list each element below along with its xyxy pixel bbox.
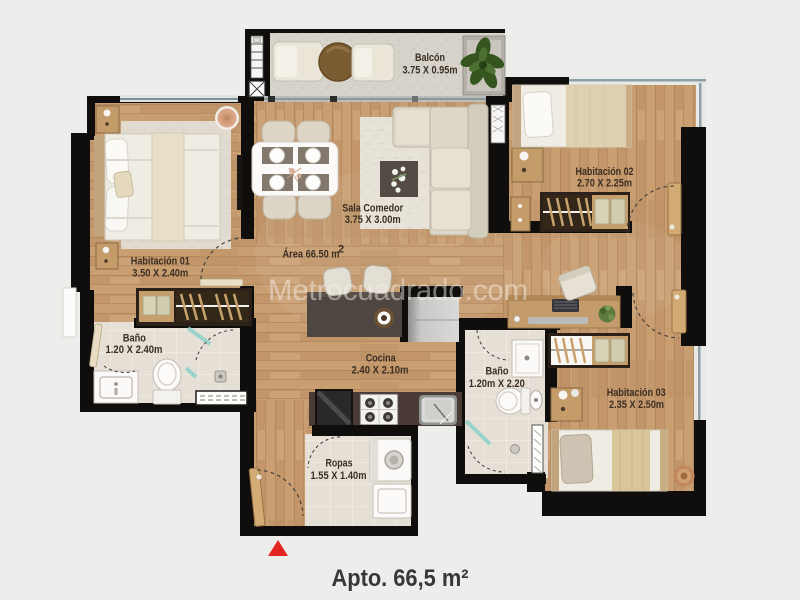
svg-text:Apto. 66,5 m²: Apto. 66,5 m² [332,565,469,592]
svg-text:3.75 X 3.00m: 3.75 X 3.00m [345,214,401,226]
svg-text:Cocina: Cocina [366,353,397,365]
svg-text:Habitación 02: Habitación 02 [576,166,634,178]
svg-text:Área 66.50 m: Área 66.50 m [283,248,340,261]
svg-text:2.70 X 2.25m: 2.70 X 2.25m [577,178,632,190]
svg-text:1.55 X 1.40m: 1.55 X 1.40m [311,470,367,482]
svg-text:3.75 X 0.95m: 3.75 X 0.95m [403,65,458,77]
svg-text:Baño: Baño [123,332,146,344]
svg-text:2.40 X 2.10m: 2.40 X 2.10m [352,364,409,376]
svg-text:2.35 X 2.50m: 2.35 X 2.50m [609,399,664,411]
svg-text:Ropas: Ropas [326,458,353,470]
svg-text:Habitación 01: Habitación 01 [131,256,190,268]
svg-text:1.20m X 2.20: 1.20m X 2.20 [469,378,525,390]
svg-text:Balcón: Balcón [415,52,445,64]
svg-text:Metrocuadrado.com: Metrocuadrado.com [268,274,528,307]
svg-text:3.50 X 2.40m: 3.50 X 2.40m [132,268,188,280]
svg-text:2: 2 [338,244,344,256]
svg-text:Sala Comedor: Sala Comedor [342,203,404,215]
svg-text:1.20 X 2.40m: 1.20 X 2.40m [106,344,163,356]
svg-text:Baño: Baño [486,366,509,378]
svg-text:Habitación 03: Habitación 03 [607,387,666,399]
